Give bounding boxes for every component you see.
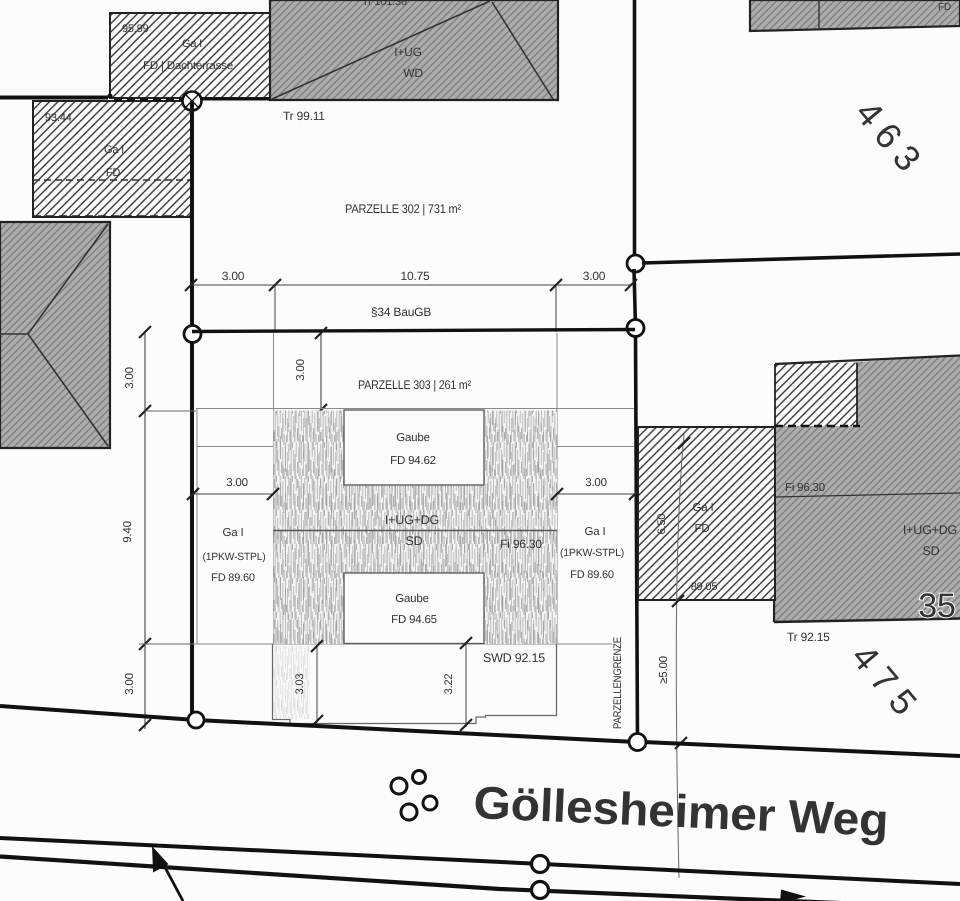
svg-text:PARZELLENGRENZE: PARZELLENGRENZE (612, 637, 624, 729)
svg-text:6.50: 6.50 (656, 514, 668, 535)
svg-text:SD: SD (406, 534, 423, 548)
svg-text:I+UG: I+UG (394, 45, 422, 59)
svg-text:(1PKW-STPL): (1PKW-STPL) (203, 551, 266, 563)
svg-text:3.00: 3.00 (124, 367, 136, 389)
svg-text:FD 89.60: FD 89.60 (570, 569, 614, 581)
svg-text:35: 35 (918, 587, 955, 625)
svg-text:3.00: 3.00 (226, 477, 248, 489)
svg-text:3.00: 3.00 (295, 359, 307, 381)
svg-text:PARZELLE 302 | 731 m²: PARZELLE 302 | 731 m² (345, 202, 461, 216)
svg-text:3.00: 3.00 (585, 477, 607, 489)
svg-text:(1PKW-STPL): (1PKW-STPL) (560, 547, 624, 559)
svg-text:Ga I: Ga I (182, 38, 202, 50)
svg-text:Ga I: Ga I (104, 144, 124, 156)
svg-text:FD 94.62: FD 94.62 (390, 455, 436, 467)
svg-text:FD 94.65: FD 94.65 (391, 614, 437, 626)
svg-text:§34 BauGB: §34 BauGB (371, 305, 431, 319)
svg-text:Fi 96.30: Fi 96.30 (785, 482, 825, 494)
svg-text:3.00: 3.00 (222, 269, 245, 283)
svg-text:3.00: 3.00 (124, 673, 136, 695)
svg-text:I+UG+DG: I+UG+DG (903, 523, 957, 537)
svg-text:95.99: 95.99 (122, 23, 149, 35)
svg-text:Tr 101.38: Tr 101.38 (362, 0, 407, 8)
svg-text:9.40: 9.40 (122, 521, 134, 543)
svg-text:Ga I: Ga I (693, 502, 714, 514)
svg-text:WD: WD (403, 66, 423, 80)
svg-text:Tr 92.15: Tr 92.15 (787, 630, 830, 644)
svg-text:Gaube: Gaube (396, 432, 430, 444)
svg-text:FD: FD (695, 523, 710, 535)
svg-text:Ga I: Ga I (223, 527, 244, 539)
svg-text:93.44: 93.44 (45, 112, 72, 124)
svg-text:3.00: 3.00 (583, 269, 606, 283)
svg-text:≥5.00: ≥5.00 (658, 656, 670, 684)
svg-text:Gaube: Gaube (395, 593, 429, 605)
svg-text:SD: SD (923, 544, 940, 558)
svg-text:10.75: 10.75 (400, 269, 430, 283)
svg-text:89.05: 89.05 (691, 581, 718, 593)
svg-text:FD | Dachterrasse: FD | Dachterrasse (143, 60, 233, 72)
svg-text:Ga I: Ga I (585, 526, 606, 538)
svg-text:FD: FD (106, 167, 121, 179)
svg-text:3.22: 3.22 (443, 674, 455, 695)
svg-text:I+UG+DG: I+UG+DG (385, 513, 439, 527)
svg-text:SWD 92.15: SWD 92.15 (483, 651, 545, 665)
svg-text:FD: FD (938, 2, 951, 13)
svg-text:PARZELLE 303 | 261 m²: PARZELLE 303 | 261 m² (358, 378, 471, 392)
svg-text:Tr 99.11: Tr 99.11 (283, 109, 325, 123)
svg-text:3.03: 3.03 (294, 674, 306, 695)
svg-text:Fi 96.30: Fi 96.30 (500, 537, 542, 551)
svg-text:FD 89.60: FD 89.60 (211, 572, 255, 584)
